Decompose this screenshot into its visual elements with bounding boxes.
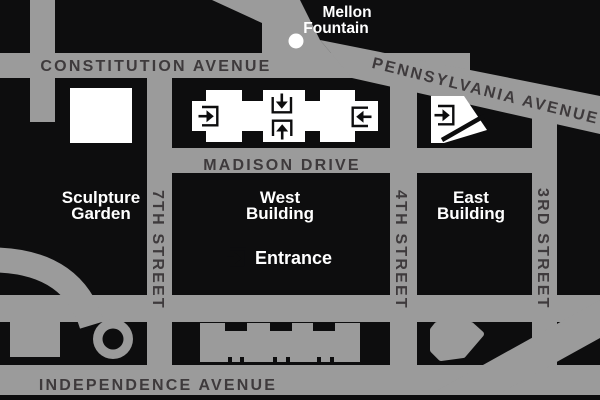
tick xyxy=(286,357,290,362)
square-building-footprint xyxy=(10,317,60,357)
west-building-right-pavilion xyxy=(320,90,355,142)
entrance-label: Entrance xyxy=(255,248,332,268)
seventh-street-label: 7TH STREET xyxy=(149,190,166,310)
tick xyxy=(330,357,334,362)
notched-building-footprint xyxy=(200,323,360,362)
independence-avenue-label: INDEPENDENCE AVENUE xyxy=(39,377,277,394)
tick xyxy=(240,357,244,362)
circular-building-courtyard xyxy=(103,329,124,350)
mellon-fountain-dot xyxy=(289,34,304,49)
map-canvas: CONSTITUTION AVENUE MADISON DRIVE INDEPE… xyxy=(0,0,600,400)
notch xyxy=(225,323,247,331)
west-building-footprint xyxy=(192,90,378,142)
tick xyxy=(273,357,277,362)
sculpture-garden-label: SculptureGarden xyxy=(62,188,140,223)
white-square-building xyxy=(70,88,132,143)
tick xyxy=(228,357,232,362)
west-building-center-pavilion xyxy=(263,90,305,142)
notch xyxy=(313,323,335,331)
nga-area-map: CONSTITUTION AVENUE MADISON DRIVE INDEPE… xyxy=(0,0,600,400)
fourth-street-label: 4TH STREET xyxy=(392,190,409,310)
madison-drive-label: MADISON DRIVE xyxy=(203,157,361,174)
constitution-avenue-label: CONSTITUTION AVENUE xyxy=(40,58,271,75)
tick xyxy=(317,357,321,362)
third-street-label: 3RD STREET xyxy=(534,188,551,310)
notch xyxy=(270,323,292,331)
